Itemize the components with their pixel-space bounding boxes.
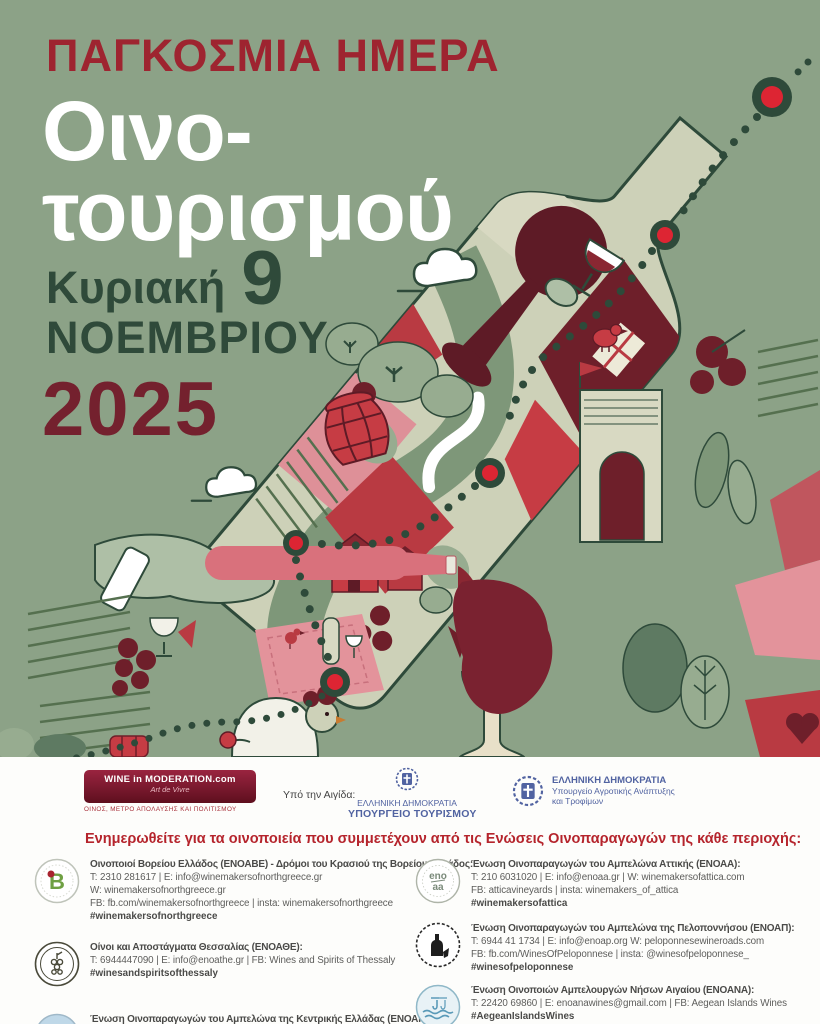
enoana-logo <box>415 984 461 1024</box>
thessaly-logo <box>34 941 80 987</box>
entry-contact-line: W: winemakersofnorthgreece.gr <box>90 884 422 897</box>
svg-text:aa: aa <box>432 882 444 893</box>
entry-title: Ένωση Οινοπαραγωγών του Αμπελώνα της Πελ… <box>471 922 815 935</box>
wine-in-moderation-logo: WINE in MODERATION.com Art de Vivre ΟΙΝΟ… <box>84 770 256 813</box>
arch-tower-icon <box>580 362 662 542</box>
aegis-label: Υπό την Αιγίδα: <box>283 789 355 801</box>
entry-contact-line: FB: fb.com/winemakersofnorthgreece | ins… <box>90 897 422 910</box>
agri-line1: ΕΛΛΗΝΙΚΗ ΔΗΜΟΚΡΑΤΙΑ <box>552 775 675 786</box>
wine-tourism-poster: ΠΑΓΚΟΣΜΙΑ ΗΜΕΡΑ Οινο- τουρισμού Κυριακή … <box>0 0 820 1024</box>
directory-entry-enoaa: eno aa Ένωση Οινοπαραγωγών του Αμπελώνα … <box>415 858 815 910</box>
entry-contact-line: FB: atticavineyards | insta: winemakers_… <box>471 884 815 897</box>
entry-hashtag: #winemakersofnorthgreece <box>90 910 422 923</box>
ministry-of-tourism-logo: ΕΛΛΗΝΙΚΗ ΔΗΜΟΚΡΑΤΙΑ ΥΠΟΥΡΓΕΙΟ ΤΟΥΡΙΣΜΟΥ <box>348 767 466 820</box>
entry-title: Ένωση Οινοποιών Αμπελουργών Νήσων Αιγαίο… <box>471 984 815 997</box>
directory-entry-enoake: Ένωση Οινοπαραγωγών του Αμπελώνα της Κεν… <box>34 1013 422 1024</box>
entry-contact-line: T: 22420 69860 | E: enoanawines@gmail.co… <box>471 997 815 1010</box>
entry-title: Οινοποιοί Βορείου Ελλάδος (ΕΝΟΑΒΕ) - Δρό… <box>90 858 422 871</box>
poster-top: ΠΑΓΚΟΣΜΙΑ ΗΜΕΡΑ Οινο- τουρισμού Κυριακή … <box>0 0 820 757</box>
entry-hashtag: #winemakersofattica <box>471 897 815 910</box>
entry-contact-line: FB: fb.com/WinesOfPeloponnese | insta: @… <box>471 948 815 961</box>
entry-hashtag: #winesandspiritsofthessaly <box>90 967 422 980</box>
footer: WINE in MODERATION.com Art de Vivre ΟΙΝΟ… <box>0 757 820 1024</box>
enoake-logo <box>34 1013 80 1024</box>
greek-emblem-icon <box>395 767 419 791</box>
directory-entry-enoap: Ένωση Οινοπαραγωγών του Αμπελώνα της Πελ… <box>415 922 815 974</box>
entry-title: Ένωση Οινοπαραγωγών του Αμπελώνα της Κεν… <box>90 1013 422 1024</box>
directory-column-right: eno aa Ένωση Οινοπαραγωγών του Αμπελώνα … <box>415 858 815 1024</box>
wim-title: WINE in MODERATION.com <box>84 774 256 785</box>
directory-entry-enoathe: Οίνοι και Αποστάγματα Θεσσαλίας (ΕΝΟΑΘΕ)… <box>34 941 422 987</box>
directory-heading: Ενημερωθείτε για τα οινοποιεία που συμμε… <box>85 831 801 847</box>
entry-title: Ένωση Οινοπαραγωγών του Αμπελώνα Αττικής… <box>471 858 815 871</box>
entry-title: Οίνοι και Αποστάγματα Θεσσαλίας (ΕΝΟΑΘΕ)… <box>90 941 422 954</box>
entry-contact-line: T: 6944 41 1734 | E: info@enoap.org W: p… <box>471 935 815 948</box>
enoaa-logo: eno aa <box>415 858 461 904</box>
entry-hashtag: #AegeanIslandsWines <box>471 1010 815 1023</box>
entry-contact-line: T: 6944447090 | E: info@enoathe.gr | FB:… <box>90 954 422 967</box>
ministry-of-agriculture-logo: ΕΛΛΗΝΙΚΗ ΔΗΜΟΚΡΑΤΙΑ Υπουργείο Αγροτικής … <box>512 775 675 807</box>
wine-map-illustration <box>0 0 820 757</box>
entry-hashtag: #winesofpeloponnese <box>471 961 815 974</box>
wim-tagline: ΟΙΝΟΣ, ΜΕΤΡΟ ΑΠΟΛΑΥΣΗΣ ΚΑΙ ΠΟΛΙΤΙΣΜΟΥ <box>84 806 256 813</box>
agri-line2: Υπουργείο Αγροτικής Ανάπτυξης <box>552 786 675 796</box>
tourism-line1: ΕΛΛΗΝΙΚΗ ΔΗΜΟΚΡΑΤΙΑ <box>348 798 466 808</box>
wim-subtitle: Art de Vivre <box>84 785 256 794</box>
entry-contact-line: T: 2310 281617 | E: info@winemakersofnor… <box>90 871 422 884</box>
directory-entry-enoana: Ένωση Οινοποιών Αμπελουργών Νήσων Αιγαίο… <box>415 984 815 1024</box>
greek-emblem-icon <box>512 775 544 807</box>
directory-entry-enoave: B Οινοποιοί Βορείου Ελλάδος (ΕΝΟΑΒΕ) - Δ… <box>34 858 422 923</box>
entry-contact-line: T: 210 6031020 | E: info@enoaa.gr | W: w… <box>471 871 815 884</box>
agri-line3: και Τροφίμων <box>552 796 675 806</box>
enoave-logo: B <box>34 858 80 904</box>
wim-badge: WINE in MODERATION.com Art de Vivre <box>84 770 256 803</box>
tourism-line2: ΥΠΟΥΡΓΕΙΟ ΤΟΥΡΙΣΜΟΥ <box>348 808 466 820</box>
directory-column-left: B Οινοποιοί Βορείου Ελλάδος (ΕΝΟΑΒΕ) - Δ… <box>34 858 422 1024</box>
enoap-logo <box>415 922 461 968</box>
